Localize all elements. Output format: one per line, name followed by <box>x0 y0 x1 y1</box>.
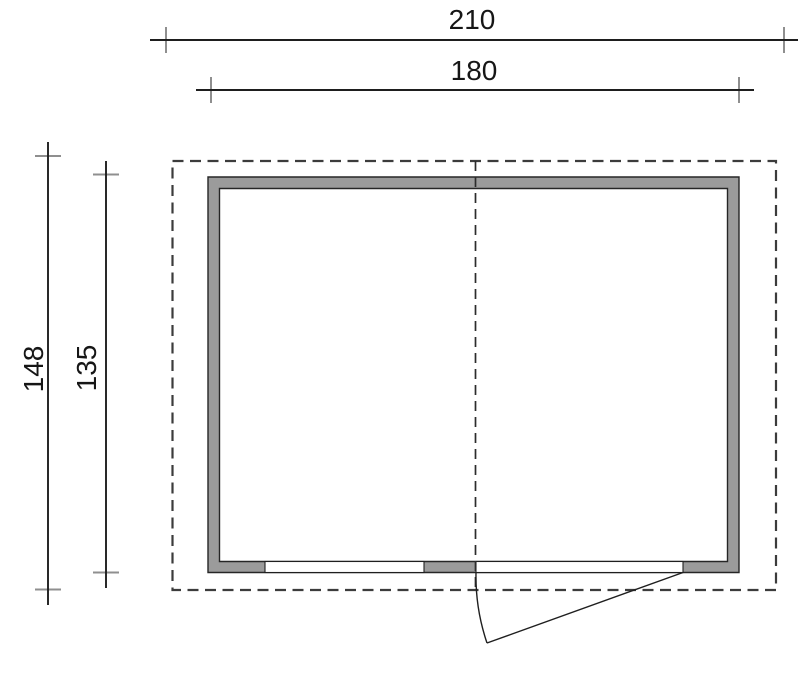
door-swing <box>476 573 683 644</box>
door-leaf-line <box>487 573 683 644</box>
dimension-ticks <box>35 27 784 590</box>
wall-ring <box>208 177 739 573</box>
floor-plan-svg: 210 180 148 135 <box>0 0 800 685</box>
drawing-stage: 210 180 148 135 <box>0 0 800 685</box>
dim-label-building-width: 180 <box>451 55 498 86</box>
dim-label-building-depth: 135 <box>71 345 102 392</box>
roof-overhang-outline <box>173 161 777 590</box>
dimension-labels: 210 180 148 135 <box>18 4 497 392</box>
dim-label-overall-depth: 148 <box>18 346 49 393</box>
dimension-lines <box>48 40 798 605</box>
door-opening <box>476 562 683 573</box>
window-opening <box>265 562 424 573</box>
dim-label-overall-width: 210 <box>449 4 496 35</box>
door-swing-arc <box>476 573 487 644</box>
